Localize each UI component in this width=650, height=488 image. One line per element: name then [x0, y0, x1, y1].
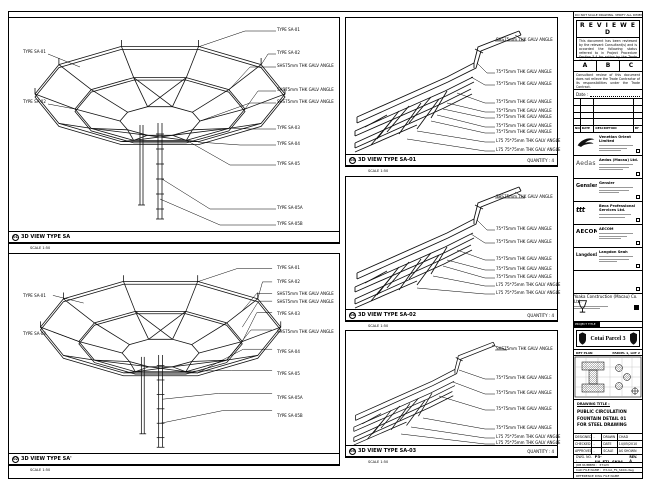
designed-value: - — [592, 434, 602, 440]
leader-label: SHS75mm THK GALV ANGLE — [496, 38, 553, 42]
cad-file-value: P3-UA_FS_SK04.dwg — [603, 468, 634, 472]
dwg-no-row: DWG. NO. : P3-UA_FTL_SK04 REV. A — [574, 455, 642, 463]
drawing-title-line: FOR STEEL DRAWING — [577, 422, 639, 429]
leader-label: SHS75mm THK GALV ANGLE — [277, 100, 334, 104]
leader-label: TYPE SA-05B — [277, 222, 303, 226]
revision-table: NO. DATE DESCRIPTION BY — [574, 99, 642, 133]
leader-label: 75*75mm THK GALV ANGLE — [496, 109, 552, 113]
reviewed-title: R E V I E W E D — [577, 21, 639, 38]
view-title: 3D VIEW TYPE SA-02 — [358, 312, 416, 318]
title-block: DO NOT SCALE DRAWING. VERIFY ALL DIMENSI… — [573, 11, 643, 479]
view-scale: SCALE 1:50 — [30, 468, 50, 472]
status-checkbox — [636, 287, 640, 291]
quantity-note: QUANTITY : 4 — [527, 158, 554, 163]
reviewed-body: This document has been reviewed by the r… — [577, 38, 639, 61]
aedas-logo: Aedas — [576, 160, 597, 167]
dwg-no-value: P3-UA_FTL_SK04 — [595, 455, 628, 463]
detail-bubble: 02 — [12, 456, 19, 463]
company-name: Venetian Orient Limited — [599, 136, 641, 144]
scale-value: AS SHOWN — [618, 448, 642, 454]
leader-label: SHS75mm THK GALV ANGLE — [277, 88, 334, 92]
detail-bubble: 04 — [349, 312, 356, 319]
company-row-beca: ttt Beca Professional Services Ltd. — [574, 202, 642, 225]
view-scale: SCALE 1:50 — [368, 169, 388, 173]
venetian-lion-logo — [576, 137, 597, 147]
contractor-row: Yoaka Construction (Macau) Co. Ltd. — [574, 294, 642, 322]
right-emblem-icon — [630, 332, 637, 345]
drawing-title-section: DRAWING TITLE : PUBLIC CIRCULATION FOUNT… — [574, 400, 642, 434]
view-title: 3D VIEW TYPE SA — [21, 234, 70, 240]
checked-value: - — [592, 441, 602, 447]
leader-label: SHS75mm THK GALV ANGLE — [277, 292, 334, 296]
revision-header: NO. DATE DESCRIPTION BY — [574, 126, 642, 132]
company-row-venetian: Venetian Orient Limited — [574, 133, 642, 156]
status-checkbox — [636, 241, 640, 245]
leader-label: 75*75mm THK GALV ANGLE — [496, 70, 552, 74]
company-name: Beca Professional Services Ltd. — [599, 205, 641, 213]
status-b: B — [597, 61, 620, 71]
reviewed-stamp: R E V I E W E D This document has been r… — [574, 18, 642, 61]
left-emblem-icon — [579, 332, 586, 345]
drawn-value: CHAD — [618, 434, 642, 440]
leader-label: TYPE SA-01 — [277, 28, 300, 32]
leader-label: 75*75mm THK GALV ANGLE — [496, 407, 552, 411]
leader-label: 75*75mm THK GALV ANGLE — [496, 130, 552, 134]
key-plan-label: KEY PLAN — [576, 350, 593, 355]
status-checkbox — [636, 195, 640, 199]
date-label: DATE — [602, 441, 618, 447]
company-row-aecom: AECOM AECOM — [574, 225, 642, 248]
status-checkbox — [636, 218, 640, 222]
view-titlebar: 02 3D VIEW TYPE SA' — [9, 453, 339, 464]
leader-label: TYPE SA-04 — [277, 142, 300, 146]
aecom-logo: AECOM — [576, 229, 597, 235]
company-row-aedas: Aedas Aedas (Macau) Ltd. — [574, 156, 642, 179]
status-abc-row: A B C — [574, 61, 642, 72]
leader-label: TYPE SA-01 — [23, 50, 46, 54]
date-row: Date : — [574, 90, 642, 99]
job-number-value: 37123 — [599, 463, 609, 467]
approved-value: - — [592, 448, 602, 454]
project-title-tag: PROJECT TITLE — [574, 322, 600, 327]
langdon-seah-logo: LangdonSeah — [576, 252, 597, 257]
status-checkbox — [636, 264, 640, 268]
leader-label: SHS75mm THK GALV ANGLE — [277, 330, 334, 334]
reference-dwg-row: REFERENCE DWG FILE NAME — [574, 473, 642, 478]
quantity-note: QUANTITY : 4 — [527, 449, 554, 454]
view-title: 3D VIEW TYPE SA' — [21, 456, 72, 462]
key-plan: KEY PLAN PARCEL 1, LOT 2 — [574, 350, 642, 400]
leader-label: TYPE SA-05 — [277, 162, 300, 166]
leader-label: TYPE SA-02 — [277, 280, 300, 284]
dwg-no-label: DWG. NO. : — [576, 455, 593, 463]
disclaimer-text: Consultant review of this document does … — [574, 72, 642, 90]
leader-label: SHS75mm THK GALV ANGLE — [277, 64, 334, 68]
drawn-label: DRAWN — [602, 434, 618, 440]
panel-3d-view-type-sa-03: SHS75mm THK GALV ANGLE 75*75mm THK GALV … — [345, 330, 558, 458]
leader-label: TYPE SA-02 — [277, 51, 300, 55]
drawing-title-line: PUBLIC CIRCULATION — [577, 409, 639, 416]
date-label: Date : — [576, 92, 588, 97]
leader-label: 75*75mm THK GALV ANGLE — [496, 227, 552, 231]
drawing-title-line: FOUNTAIN DETAIL 01 — [577, 416, 639, 423]
credits-table: DESIGNED - DRAWN CHAD CHECKED - DATE 14/… — [574, 434, 642, 455]
revision-row — [574, 119, 642, 126]
leader-label: 75*75mm THK GALV ANGLE — [496, 82, 552, 86]
panel-3d-view-type-sa-01: SHS75mm THK GALV ANGLE 75*75mm THK GALV … — [345, 17, 558, 167]
leader-label: L75 75*75mm THK GALV ANGLE — [496, 435, 560, 439]
cad-file-label: CAD FILE NAME : — [576, 468, 601, 472]
company-name: Aedas (Macau) Ltd. — [599, 159, 641, 163]
canopy-drawing — [10, 255, 340, 454]
designed-label: DESIGNED — [574, 434, 592, 440]
view-title: 3D VIEW TYPE SA-03 — [358, 448, 416, 454]
leader-label: 75*75mm THK GALV ANGLE — [496, 257, 552, 261]
project-title-banner: Cotai Parcel 3 — [574, 328, 642, 350]
leader-label: 75*75mm THK GALV ANGLE — [496, 124, 552, 128]
view-titlebar: 04 3D VIEW TYPE SA-02 QUANTITY : 4 — [346, 309, 557, 320]
company-name: Langdon Seah — [599, 251, 641, 255]
company-row-langdon-seah: LangdonSeah Langdon Seah — [574, 248, 642, 271]
view-titlebar: 03 3D VIEW TYPE SA-01 QUANTITY : 4 — [346, 154, 557, 165]
beca-logo: ttt — [576, 206, 597, 214]
project-title: Cotai Parcel 3 — [591, 336, 626, 342]
view-scale: SCALE 1:50 — [30, 246, 50, 250]
leader-label: TYPE SA-05A — [277, 206, 303, 210]
panel-3d-view-type-sa-prime: TYPE SA-01 TYPE SA-02 SHS75mm THK GALV A… — [8, 253, 340, 466]
key-plan-drawing — [574, 356, 642, 398]
leader-label: TYPE SA-01 — [277, 266, 300, 270]
drawing-title-label: DRAWING TITLE : — [577, 402, 610, 407]
company-row-empty — [574, 271, 642, 294]
leader-label: L75 75*75mm THK GALV ANGLE — [496, 148, 560, 152]
leader-label: TYPE SA-03 — [277, 126, 300, 130]
reference-dwg-label: REFERENCE DWG FILE NAME — [576, 474, 619, 478]
view-scale: SCALE 1:50 — [368, 324, 388, 328]
view-titlebar: 05 3D VIEW TYPE SA-03 QUANTITY : 4 — [346, 445, 557, 456]
leader-label: 75*75mm THK GALV ANGLE — [496, 376, 552, 380]
leader-label: 75*75mm THK GALV ANGLE — [496, 426, 552, 430]
contractor-stamp-square — [634, 305, 639, 310]
leader-label: TYPE SA-03 — [277, 312, 300, 316]
date-value: 14/05/2010 — [618, 441, 642, 447]
date-fill-line — [590, 92, 640, 97]
gensler-logo: Gensler — [576, 183, 597, 189]
drawing-sheet-page: TYPE SA-01 TYPE SA-02 SHS75mm THK GALV A… — [0, 0, 650, 488]
revision-row — [574, 113, 642, 120]
detail-bubble: 01 — [12, 234, 19, 241]
leader-label: SHS75mm THK GALV ANGLE — [277, 300, 334, 304]
leader-label: 75*75mm THK GALV ANGLE — [496, 391, 552, 395]
leader-label: 75*75mm THK GALV ANGLE — [496, 267, 552, 271]
company-name: AECOM — [599, 228, 641, 232]
leader-label: 75*75mm THK GALV ANGLE — [496, 275, 552, 279]
status-checkbox — [636, 172, 640, 176]
leader-label: SHS75mm THK GALV ANGLE — [496, 347, 553, 351]
leader-label: SHS75mm THK GALV ANGLE — [496, 195, 553, 199]
leader-label: L75 75*75mm THK GALV ANGLE — [496, 139, 560, 143]
panel-3d-view-type-sa: TYPE SA-01 TYPE SA-02 SHS75mm THK GALV A… — [8, 17, 340, 244]
leader-label: 75*75mm THK GALV ANGLE — [496, 100, 552, 104]
key-plan-parcel: PARCEL 1, LOT 2 — [612, 350, 640, 355]
scale-label: SCALE — [602, 448, 618, 454]
detail-bubble: 05 — [349, 448, 356, 455]
revision-letter: REV. A — [629, 455, 640, 463]
leader-label: TYPE SA-05B — [277, 414, 303, 418]
status-a: A — [574, 61, 597, 71]
leader-label: L75 75*75mm THK GALV ANGLE — [496, 283, 560, 287]
company-name: Gensler — [599, 182, 641, 186]
status-c: C — [620, 61, 642, 71]
job-number-label: JOB NUMBER : — [576, 463, 597, 467]
company-row-gensler: Gensler Gensler — [574, 179, 642, 202]
leader-label: TYPE SA-01 — [23, 294, 46, 298]
quantity-note: QUANTITY : 4 — [527, 313, 554, 318]
leader-label: TYPE SA-02 — [23, 100, 46, 104]
leader-label: TYPE SA-05 — [277, 372, 300, 376]
approved-label: APPROVED — [574, 448, 592, 454]
status-checkbox — [636, 149, 640, 153]
leader-label: 75*75mm THK GALV ANGLE — [496, 115, 552, 119]
view-title: 3D VIEW TYPE SA-01 — [358, 157, 416, 163]
panel-3d-view-type-sa-02: SHS75mm THK GALV ANGLE 75*75mm THK GALV … — [345, 176, 558, 322]
revision-row — [574, 99, 642, 106]
leader-label: L75 75*75mm THK GALV ANGLE — [496, 291, 560, 295]
detail-bubble: 03 — [349, 157, 356, 164]
contractor-logo — [577, 299, 588, 315]
leader-label: TYPE SA-05A — [277, 396, 303, 400]
leader-label: TYPE SA-02 — [23, 332, 46, 336]
view-scale: SCALE 1:50 — [368, 460, 388, 464]
checked-label: CHECKED — [574, 441, 592, 447]
leader-label: TYPE SA-04 — [277, 350, 300, 354]
view-titlebar: 01 3D VIEW TYPE SA — [9, 231, 339, 242]
leader-label: 75*75mm THK GALV ANGLE — [496, 240, 552, 244]
revision-row — [574, 106, 642, 113]
